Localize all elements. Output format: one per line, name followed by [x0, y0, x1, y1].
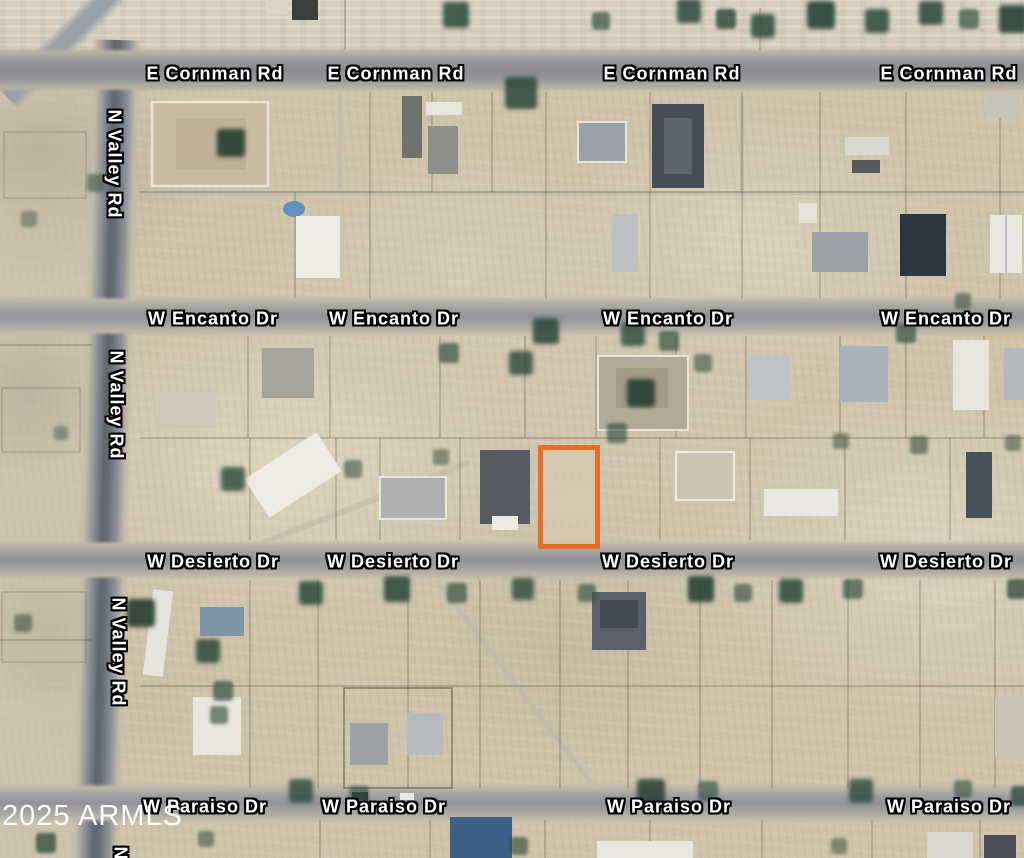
road-label-desierto-3: W Desierto Dr	[602, 552, 734, 573]
road-label-encanto-3: W Encanto Dr	[603, 309, 733, 330]
armls-watermark: 2025 ARMLS	[2, 800, 183, 833]
road-label-encanto-2: W Encanto Dr	[329, 309, 459, 330]
road-label-paraiso-4: W Paraiso Dr	[887, 797, 1011, 818]
buildings-layer	[0, 0, 1024, 858]
road-label-valley-4: N Valley Rd	[110, 846, 131, 858]
road-label-paraiso-3: W Paraiso Dr	[607, 797, 731, 818]
road-label-cornman-3: E Cornman Rd	[603, 64, 740, 85]
road-label-encanto-1: W Encanto Dr	[148, 309, 278, 330]
road-label-cornman-2: E Cornman Rd	[327, 64, 464, 85]
road-label-desierto-2: W Desierto Dr	[327, 552, 459, 573]
road-label-encanto-4: W Encanto Dr	[881, 309, 1011, 330]
highlighted-parcel-outline	[538, 445, 600, 549]
road-label-desierto-4: W Desierto Dr	[880, 552, 1012, 573]
satellite-map: E Cornman Rd E Cornman Rd E Cornman Rd E…	[0, 0, 1024, 858]
road-label-cornman-1: E Cornman Rd	[146, 64, 283, 85]
road-label-valley-1: N Valley Rd	[104, 109, 125, 218]
vegetation-layer	[0, 0, 2, 2]
road-label-paraiso-2: W Paraiso Dr	[322, 797, 446, 818]
road-label-cornman-4: E Cornman Rd	[880, 64, 1017, 85]
road-label-desierto-1: W Desierto Dr	[147, 552, 279, 573]
road-label-valley-3: N Valley Rd	[108, 597, 129, 706]
road-label-valley-2: N Valley Rd	[106, 350, 127, 459]
